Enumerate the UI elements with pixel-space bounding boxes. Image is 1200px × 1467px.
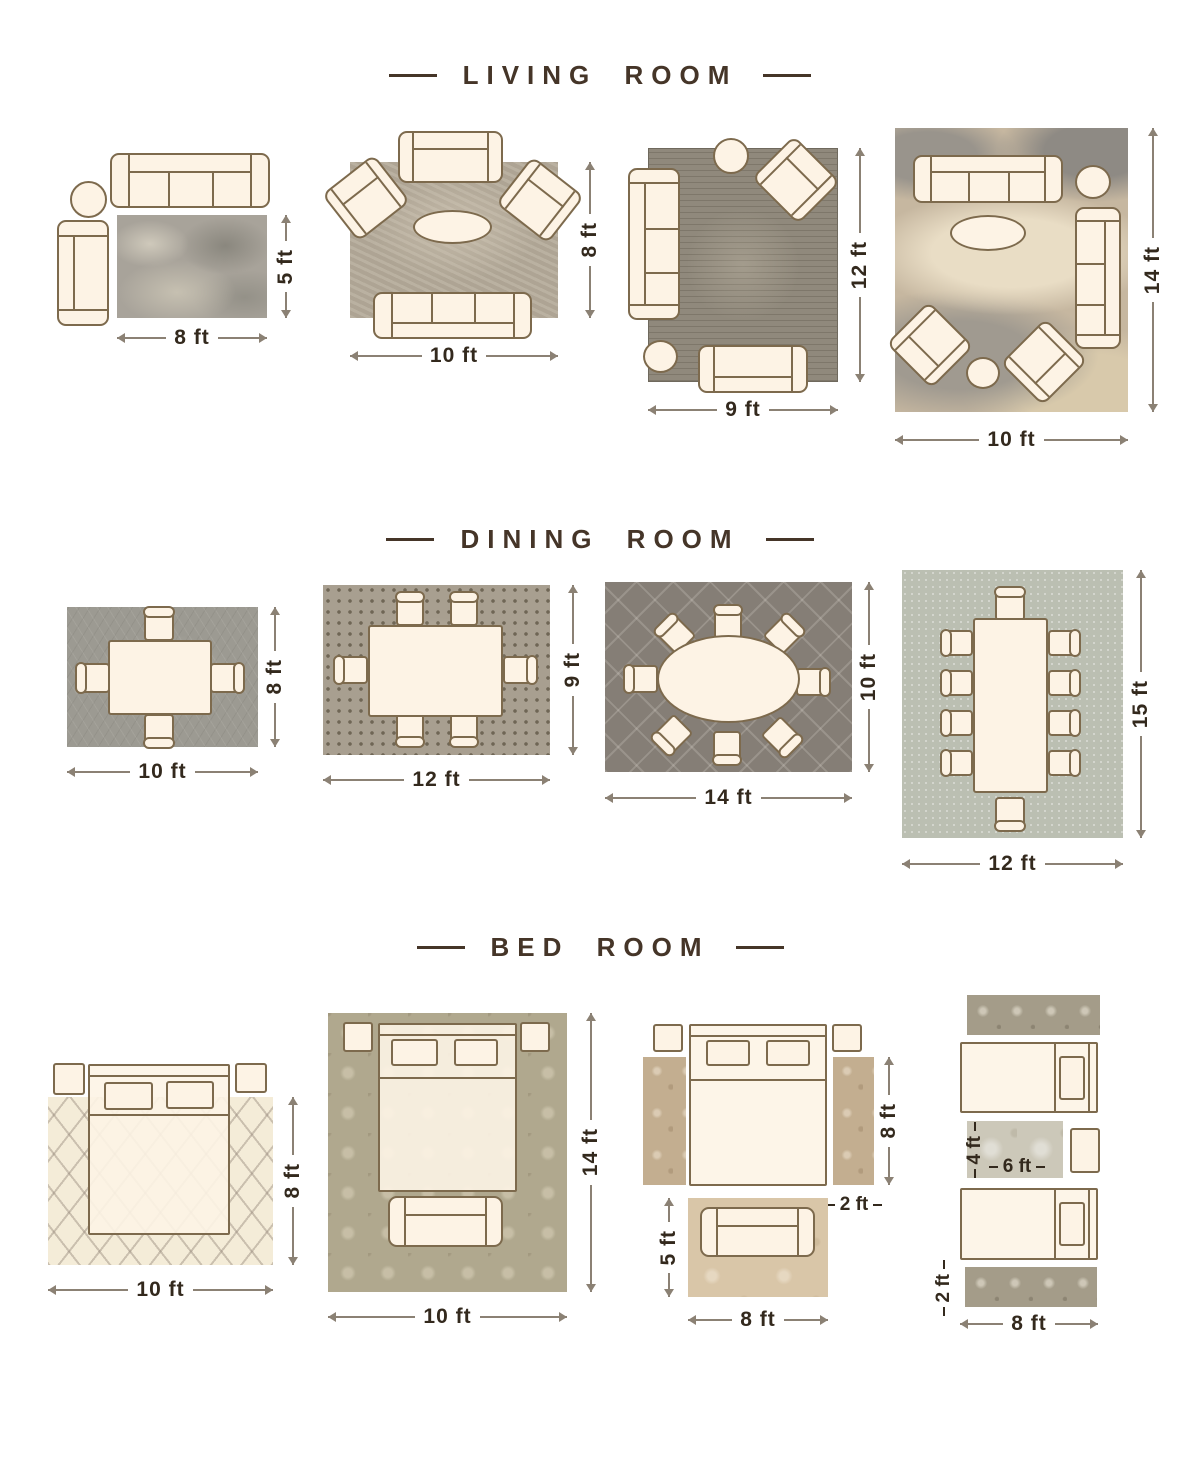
bedroom-layout-4: 4 ft 6 ft 2 ft 8 ft <box>0 0 1200 1467</box>
nightstand <box>1070 1128 1100 1173</box>
dimension-arrow-icon <box>1055 1323 1098 1325</box>
bed <box>960 1188 1098 1260</box>
runner-height-dimension: 2 ft <box>932 1260 956 1316</box>
dash-icon <box>943 1260 945 1269</box>
rug-width-dimension: 6 ft <box>986 1155 1048 1179</box>
pillow <box>1059 1202 1085 1246</box>
dimension-label: 4 ft <box>964 1136 986 1165</box>
dimension-label: 8 ft <box>1003 1312 1055 1336</box>
runner-rug <box>967 995 1100 1035</box>
rug-height-dimension: 4 ft <box>963 1122 987 1178</box>
runner-rug <box>965 1267 1097 1307</box>
rug-size-guide: LIVING ROOM 5 ft 8 ft <box>0 0 1200 1467</box>
dash-icon <box>1036 1166 1045 1168</box>
dash-icon <box>989 1166 998 1168</box>
pillow <box>1059 1056 1085 1100</box>
dimension-arrow-icon <box>960 1323 1003 1325</box>
dimension-label: 6 ft <box>1003 1156 1032 1178</box>
dash-icon <box>974 1169 976 1178</box>
dimension-label: 2 ft <box>933 1274 955 1303</box>
width-dimension: 8 ft <box>960 1310 1098 1338</box>
bed <box>960 1042 1098 1113</box>
dash-icon <box>943 1307 945 1316</box>
dash-icon <box>974 1122 976 1131</box>
